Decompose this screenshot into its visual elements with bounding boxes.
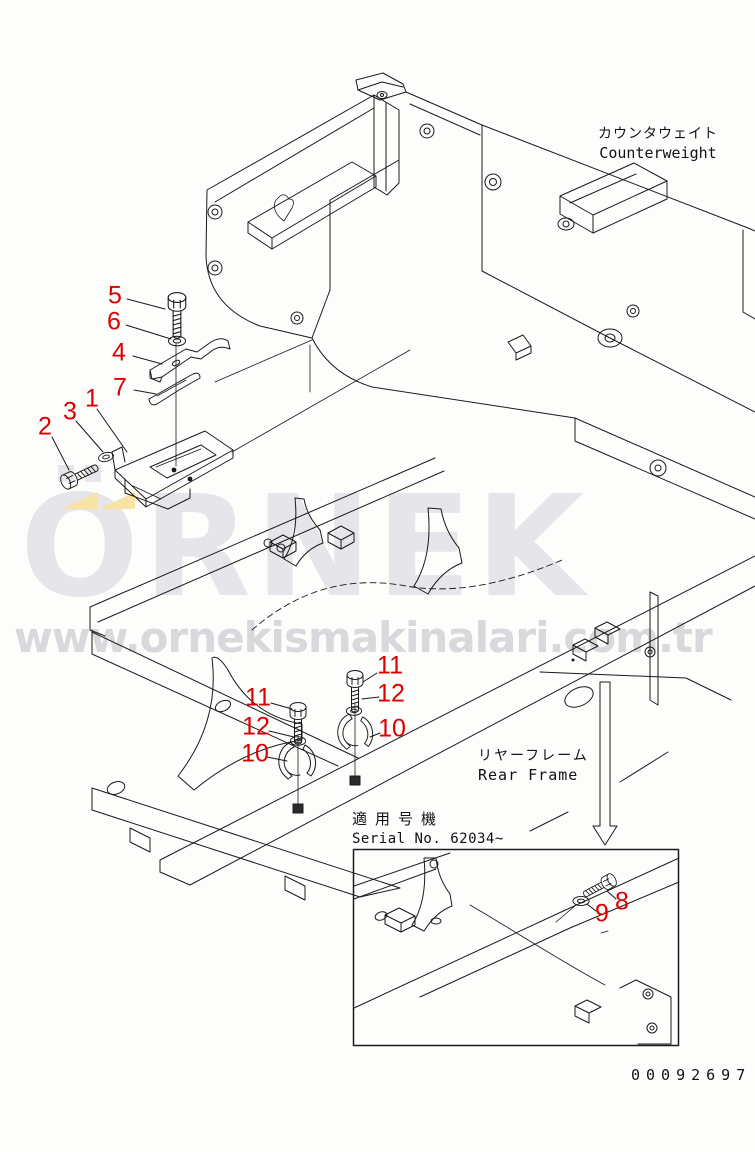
callout-1: 1 bbox=[85, 387, 99, 412]
part-bolt-2 bbox=[59, 460, 101, 490]
serial-applicability-label: 適用号機 Serial No. 62034~ bbox=[352, 808, 504, 847]
diagram-line-art bbox=[0, 0, 755, 1152]
callout-11a: 11 bbox=[245, 686, 271, 711]
part-washer-6 bbox=[169, 336, 186, 346]
callout-12b: 12 bbox=[377, 682, 405, 707]
callout-11b: 11 bbox=[377, 654, 403, 679]
counterweight-label-jp: カウンタウェイト bbox=[588, 123, 728, 143]
rear-frame-label: リヤーフレーム Rear Frame bbox=[478, 745, 589, 784]
callout-10a: 10 bbox=[241, 742, 269, 767]
part-bolt-5 bbox=[168, 293, 186, 339]
callout-8: 8 bbox=[615, 890, 629, 915]
counterweight-label: カウンタウェイト Counterweight bbox=[588, 123, 728, 162]
callout-5: 5 bbox=[108, 284, 122, 309]
callout-9: 9 bbox=[595, 902, 609, 927]
rear-frame-label-jp: リヤーフレーム bbox=[478, 745, 589, 765]
down-arrow-icon bbox=[593, 682, 617, 845]
callout-12a: 12 bbox=[242, 715, 270, 740]
rear-frame-label-en: Rear Frame bbox=[478, 766, 578, 784]
callout-3: 3 bbox=[63, 400, 77, 425]
callout-7: 7 bbox=[113, 376, 127, 401]
clamp-assembly-b bbox=[338, 671, 373, 786]
callout-4: 4 bbox=[112, 341, 126, 366]
callout-6: 6 bbox=[107, 310, 121, 335]
inset-detail-box bbox=[354, 850, 680, 1046]
serial-label-jp: 適用号機 bbox=[352, 808, 504, 829]
part-plate-1 bbox=[112, 431, 233, 509]
serial-label-en: Serial No. 62034~ bbox=[352, 831, 504, 847]
callout-2: 2 bbox=[38, 415, 52, 440]
parts-diagram-page: ÖRNEK www.ornekismakinalari.com.tr bbox=[0, 0, 755, 1152]
callout-10b: 10 bbox=[378, 717, 406, 742]
doc-number: 00092697 bbox=[631, 1066, 751, 1084]
counterweight-label-en: Counterweight bbox=[599, 144, 716, 162]
